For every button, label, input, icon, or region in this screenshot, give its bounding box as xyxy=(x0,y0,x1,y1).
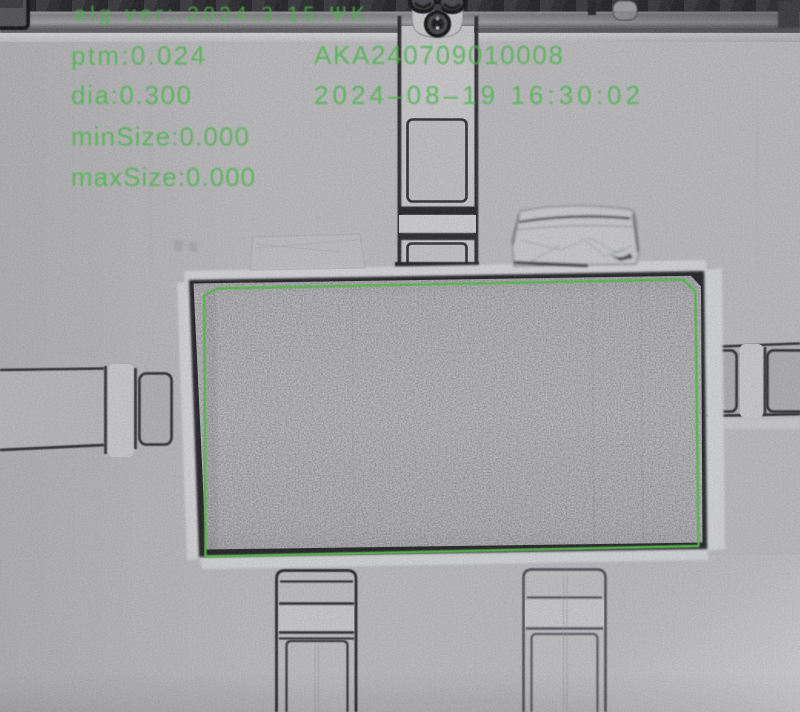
svg-text:maxSize:0.000: maxSize:0.000 xyxy=(71,162,255,192)
svg-text:dia:0.300: dia:0.300 xyxy=(71,80,191,110)
svg-text:alg ver: 2024.3.15.ΨK: alg ver: 2024.3.15.ΨK xyxy=(74,3,365,26)
svg-text:ptm:0.024: ptm:0.024 xyxy=(71,41,205,71)
svg-text:minSize:0.000: minSize:0.000 xyxy=(71,122,249,152)
svg-text:AKA240709010008: AKA240709010008 xyxy=(314,40,563,70)
